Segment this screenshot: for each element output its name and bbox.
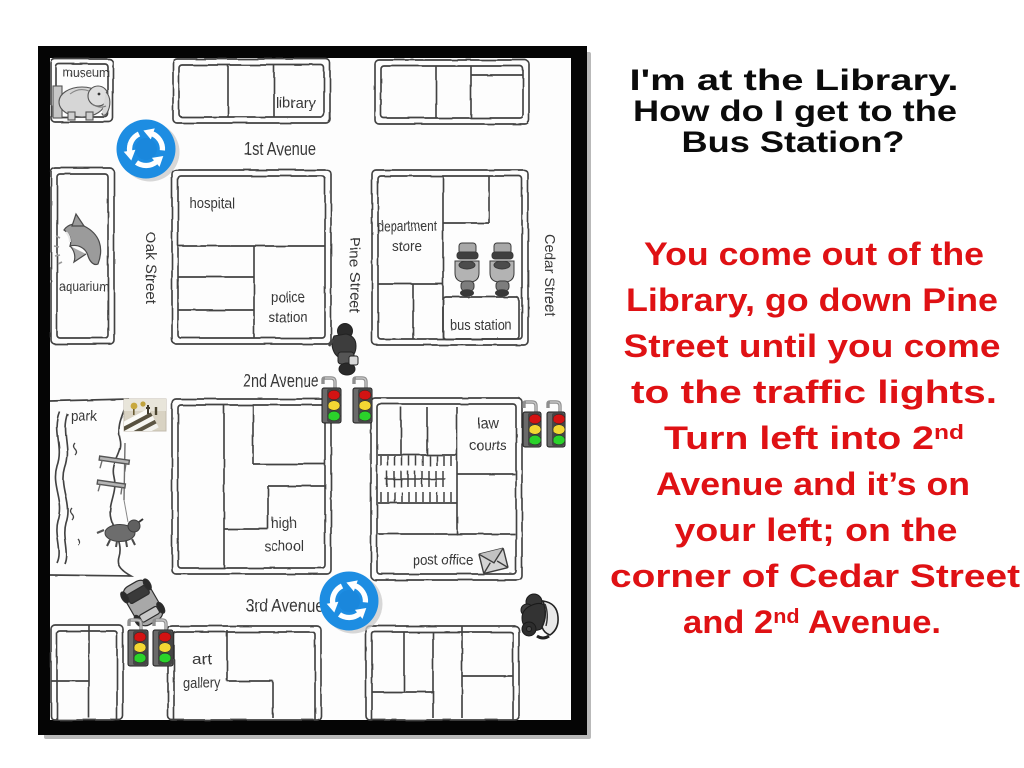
svg-text:store: store [392,238,422,255]
svg-text:Turn left into 2nd: Turn left into 2nd [664,420,964,456]
svg-text:school: school [264,538,304,555]
svg-text:bus station: bus station [450,317,512,334]
svg-text:library: library [276,95,316,112]
svg-text:3rd Avenue: 3rd Avenue [246,596,324,616]
svg-text:Cedar Street: Cedar Street [541,234,558,317]
svg-text:post office: post office [413,552,474,569]
svg-text:department: department [377,218,438,235]
svg-text:and 2nd Avenue.: and 2nd Avenue. [683,604,941,640]
svg-text:police: police [271,289,305,306]
svg-text:Oak Street: Oak Street [142,232,159,305]
svg-text:I'm at the Library.: I'm at the Library. [630,64,959,97]
svg-text:corner of Cedar Street: corner of Cedar Street [610,558,1020,594]
svg-text:law: law [477,415,499,432]
svg-text:park: park [71,408,97,425]
svg-text:high: high [271,515,297,532]
svg-text:art: art [192,651,213,668]
svg-text:Street until you come: Street until you come [624,328,1001,364]
svg-text:Pine Street: Pine Street [346,237,363,314]
svg-text:2nd Avenue: 2nd Avenue [243,371,319,391]
svg-text:aquarium: aquarium [59,278,109,294]
svg-text:Avenue and it’s on: Avenue and it’s on [656,466,970,502]
svg-text:museum: museum [63,65,109,80]
svg-text:Library, go down Pine: Library, go down Pine [626,282,998,318]
svg-text:station: station [268,309,308,326]
svg-text:to the traffic lights.: to the traffic lights. [631,374,997,410]
svg-text:courts: courts [470,437,507,454]
svg-text:gallery: gallery [183,675,221,692]
svg-text:1st Avenue: 1st Avenue [244,139,316,159]
svg-text:How do I get to the: How do I get to the [633,95,957,128]
svg-text:You come out of the: You come out of the [644,236,984,272]
svg-text:Bus Station?: Bus Station? [682,126,905,159]
svg-text:hospital: hospital [190,195,235,212]
svg-text:your left; on the: your left; on the [675,512,958,548]
